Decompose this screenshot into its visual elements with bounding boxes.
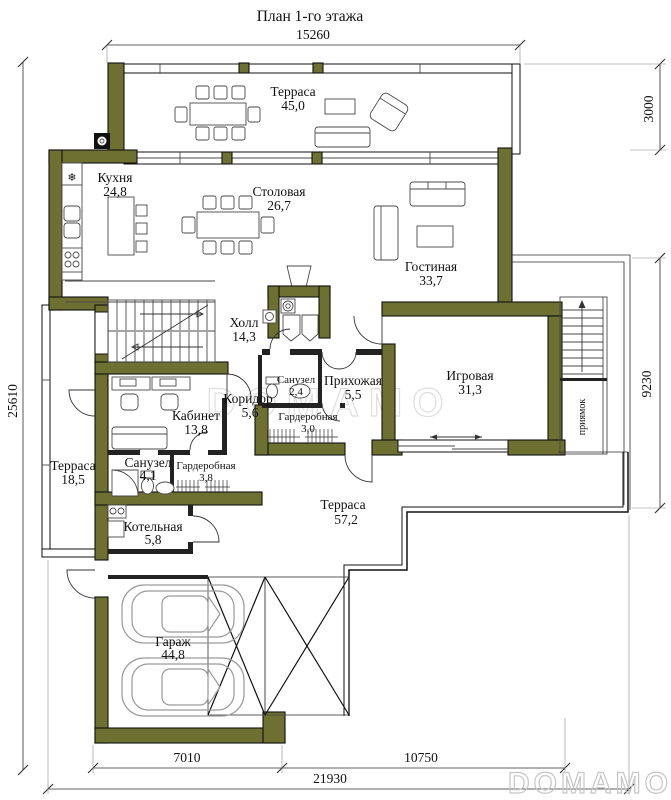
wall-terrace-west: [108, 63, 124, 160]
wall-mid-horizontal: [382, 302, 562, 316]
dining-table: [197, 212, 259, 238]
svg-text:Прихожая: Прихожая: [324, 373, 382, 388]
boiler: [108, 505, 126, 518]
svg-text:Столовая: Столовая: [252, 184, 305, 199]
watermark-corner: DOMAMO: [508, 767, 671, 800]
glazing-post: [239, 63, 249, 73]
wall-stair-south: [95, 362, 228, 374]
exterior-staircase: приямок: [512, 255, 630, 510]
svg-text:Кабинет: Кабинет: [172, 408, 220, 423]
room-label-boiler: Котельная5,8: [123, 519, 182, 547]
stool: [136, 223, 147, 234]
svg-text:31,3: 31,3: [458, 382, 482, 397]
sofa-side: [374, 206, 398, 260]
floor-plan-page: DOMAMO План 1-го этажа 15260 25610 3000 …: [0, 0, 671, 800]
svg-text:3,8: 3,8: [199, 472, 213, 484]
svg-text:57,2: 57,2: [334, 512, 358, 527]
wall-west-upper: [49, 150, 62, 310]
terrace-east-glazing: [512, 64, 520, 154]
svg-text:Гардеробная: Гардеробная: [176, 460, 235, 472]
dim-bottom-terrace: 10750: [404, 750, 438, 765]
fridge-icon: ❄: [67, 172, 76, 184]
room-label-terrace-west: Терраса18,5: [50, 458, 95, 487]
kitchen-island: [108, 197, 134, 255]
office-west-window: [95, 312, 108, 354]
svg-text:Терраса: Терраса: [270, 84, 315, 99]
garage-doors: [208, 577, 349, 715]
svg-text:Гардеробная: Гардеробная: [278, 411, 337, 423]
sink: [64, 206, 80, 221]
room-label-dining: Столовая26,7: [252, 184, 305, 213]
terrace-table: [190, 103, 246, 125]
wall-playroom-west: [382, 344, 395, 446]
terrace-sofa: [315, 127, 370, 147]
room-label-office: Кабинет13,8: [172, 408, 220, 437]
office-sofa: [112, 427, 167, 449]
armchair: [368, 91, 409, 132]
wall-playroom-south-right: [508, 440, 565, 455]
svg-text:5,5: 5,5: [345, 387, 362, 402]
wall-garage-south: [95, 728, 285, 743]
svg-text:24,8: 24,8: [103, 184, 127, 199]
svg-text:45,0: 45,0: [281, 98, 305, 113]
wall-garage-east: [263, 712, 285, 743]
svg-text:18,5: 18,5: [61, 472, 85, 487]
dining-set: [182, 196, 274, 254]
svg-text:5,8: 5,8: [145, 532, 162, 547]
dim-bottom-garage: 7010: [174, 750, 201, 765]
fireplace-flue: [287, 266, 311, 287]
appliance: [263, 310, 276, 323]
wall-living-east: [498, 148, 512, 306]
living-room-furniture: [374, 182, 465, 260]
svg-text:5,6: 5,6: [242, 405, 259, 420]
floor-plan-drawing: DOMAMO План 1-го этажа 15260 25610 3000 …: [0, 0, 671, 800]
page-title: План 1-го этажа: [257, 8, 364, 25]
glazing-post: [313, 63, 323, 73]
svg-text:33,7: 33,7: [419, 273, 443, 288]
firewood-bin: [283, 315, 300, 341]
svg-text:26,7: 26,7: [267, 198, 291, 213]
glazing-post: [312, 152, 322, 164]
svg-text:44,8: 44,8: [161, 647, 185, 662]
terrace-west-light-wall: [42, 305, 50, 557]
doors: [67, 316, 382, 598]
svg-text:Кухня: Кухня: [98, 170, 133, 185]
interior-staircase: [108, 300, 215, 362]
room-label-kitchen: Кухня24,8: [98, 170, 133, 199]
room-label-terrace-south: Терраса57,2: [320, 497, 365, 527]
svg-text:2,4: 2,4: [289, 386, 303, 398]
dim-right-top: 3000: [641, 95, 656, 122]
room-label-terrace-top: Терраса45,0: [270, 84, 315, 113]
dim-left: 25610: [5, 384, 20, 418]
playroom-sliding-door: [398, 435, 508, 453]
svg-text:Терраса: Терраса: [320, 497, 365, 512]
stool: [136, 241, 147, 252]
coffee-table: [417, 226, 453, 247]
room-label-playroom: Игровая31,3: [446, 368, 493, 397]
glazing-post: [222, 152, 232, 164]
stool: [136, 205, 147, 216]
pit-label: приямок: [577, 399, 588, 436]
svg-text:Терраса: Терраса: [50, 458, 95, 473]
firewood-bin: [302, 315, 318, 341]
coffee-table: [325, 99, 355, 114]
office-chair: [121, 394, 138, 410]
svg-text:Коридор: Коридор: [223, 391, 273, 406]
svg-text:Холл: Холл: [230, 315, 259, 330]
south-terrace-outline: [344, 452, 628, 716]
sink: [156, 482, 174, 494]
svg-text:14,3: 14,3: [232, 329, 256, 344]
dim-top: 15260: [296, 27, 330, 42]
room-label-hall: Холл14,3: [230, 315, 259, 344]
svg-text:13,8: 13,8: [184, 422, 208, 437]
dim-right-side: 9230: [639, 370, 654, 397]
svg-text:Игровая: Игровая: [446, 368, 493, 383]
svg-text:4,1: 4,1: [140, 468, 157, 483]
svg-text:Гостиная: Гостиная: [405, 259, 457, 274]
svg-text:Санузел: Санузел: [277, 374, 316, 386]
svg-text:3,0: 3,0: [301, 423, 315, 435]
car: [122, 658, 244, 716]
dim-bottom-total: 21930: [313, 771, 347, 786]
sink: [64, 223, 80, 238]
boiler-tank: [108, 521, 124, 537]
room-label-living: Гостиная33,7: [405, 259, 457, 288]
sofa: [410, 182, 465, 206]
stove: [62, 248, 82, 272]
wall-garage-west: [95, 597, 108, 743]
